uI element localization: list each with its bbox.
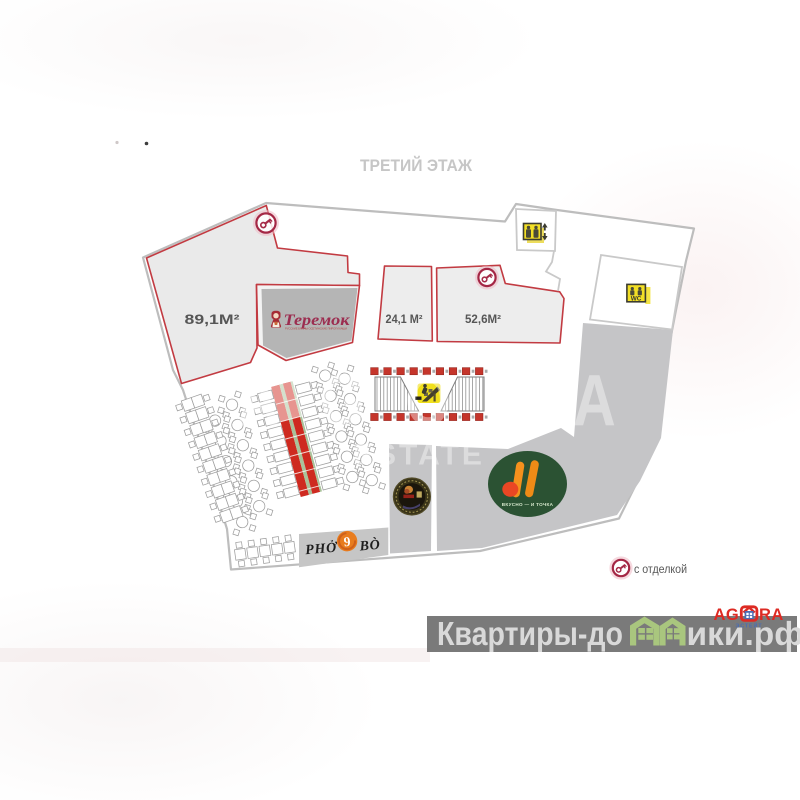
svg-text:RA: RA <box>759 606 784 624</box>
svg-text:89,1М²: 89,1М² <box>185 312 241 327</box>
svg-text:ЭСТЕЙТ: ЭСТЕЙТ <box>736 622 763 630</box>
svg-text:BÒ: BÒ <box>358 536 381 555</box>
svg-text:WC: WC <box>631 295 642 302</box>
svg-text:ТРЕТИЙ ЭТАЖ: ТРЕТИЙ ЭТАЖ <box>360 156 473 175</box>
svg-text:с отделкой: с отделкой <box>634 564 687 576</box>
svg-text:AG: AG <box>714 606 740 624</box>
svg-text:24,1 М²: 24,1 М² <box>386 314 423 326</box>
svg-text:РУССКИЕ БЛИНЫ ОСЕТИНСКИЕ ПИРОГ: РУССКИЕ БЛИНЫ ОСЕТИНСКИЕ ПИРОГИ КАШИ <box>285 327 347 331</box>
svg-text:ESTATE: ESTATE <box>353 439 485 472</box>
svg-text:52,6М²: 52,6М² <box>465 314 501 326</box>
svg-text:ВКУСНО — И ТОЧКА: ВКУСНО — И ТОЧКА <box>502 502 554 507</box>
svg-text:Квартиры-до: Квартиры-до <box>437 616 623 653</box>
svg-text:AGORA: AGORA <box>237 359 656 440</box>
